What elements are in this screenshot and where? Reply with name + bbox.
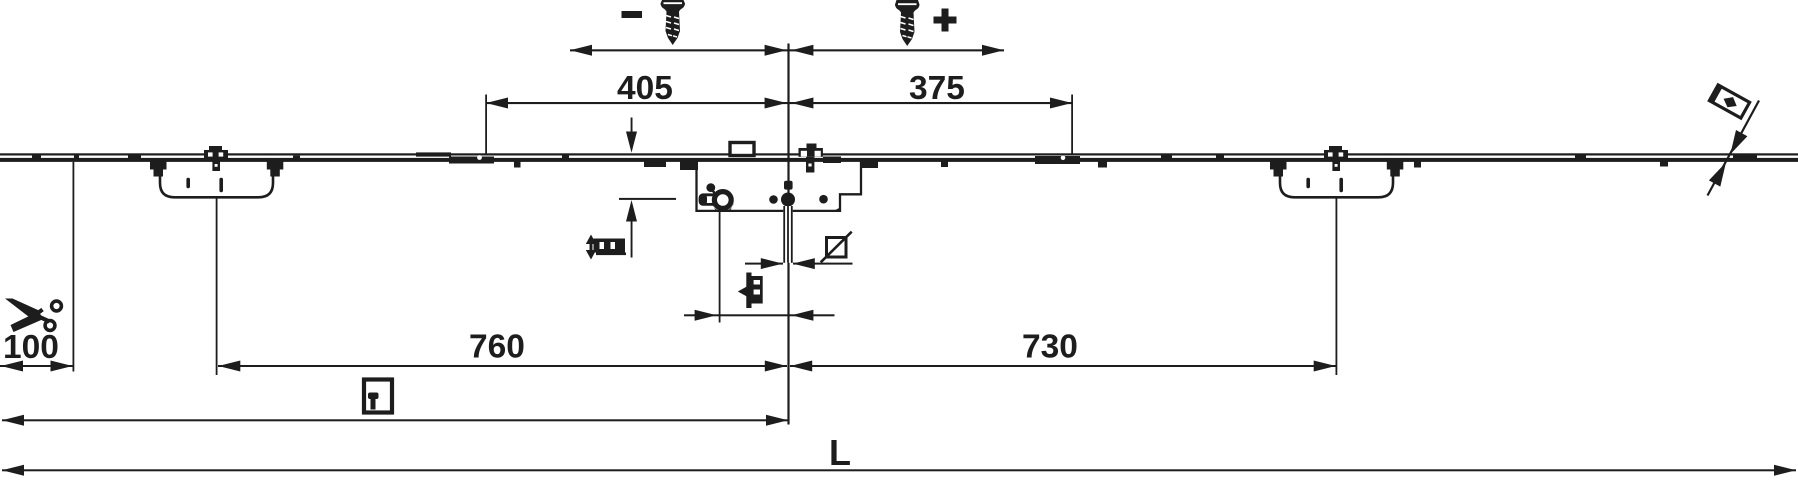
svg-text:100: 100 xyxy=(3,329,59,366)
svg-text:L: L xyxy=(829,432,851,473)
svg-text:730: 730 xyxy=(1022,329,1078,366)
svg-text:760: 760 xyxy=(469,329,525,366)
svg-text:375: 375 xyxy=(909,70,965,107)
svg-text:405: 405 xyxy=(617,70,673,107)
